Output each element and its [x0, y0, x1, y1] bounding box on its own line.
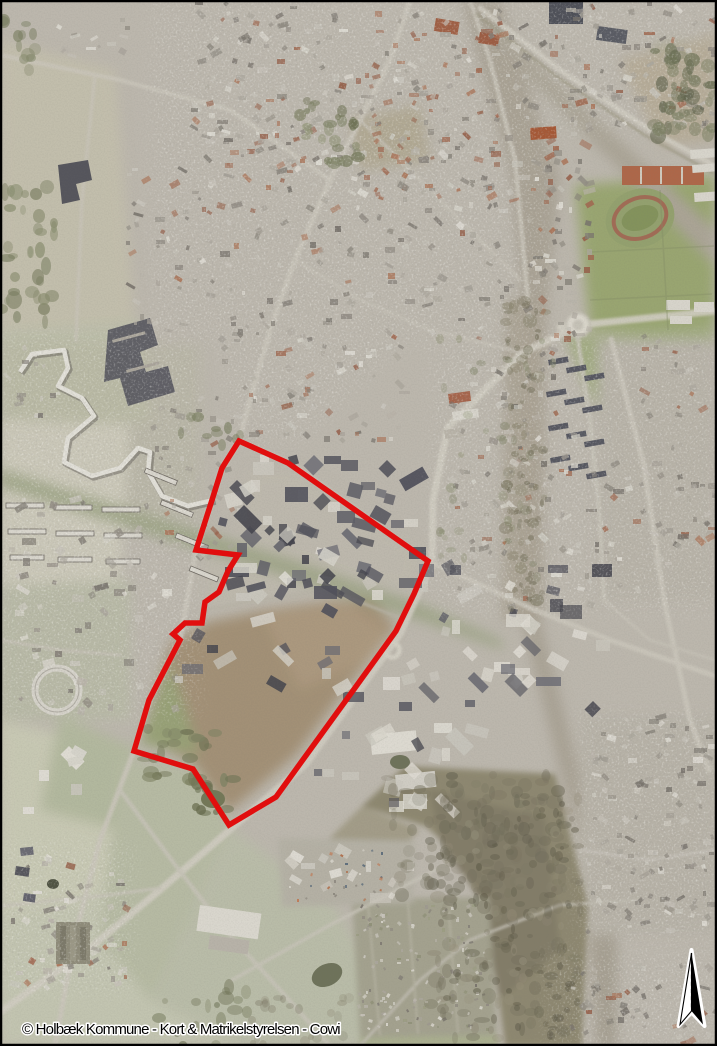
svg-text:© Holbæk Kommune - Kort & Matr: © Holbæk Kommune - Kort & Matrikelstyrel… [22, 1021, 340, 1038]
